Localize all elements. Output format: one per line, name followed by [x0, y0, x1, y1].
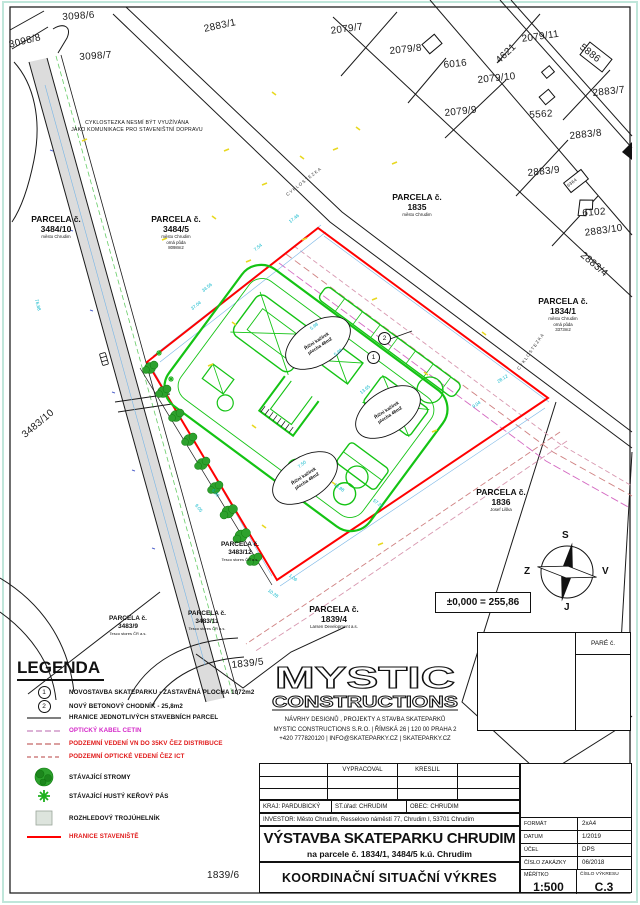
parcel-label-3484-5: PARCELA č. 3484/5 město Chrudim orná půd…	[151, 214, 201, 251]
meritko-value: 1:500	[521, 879, 576, 895]
legend-title: LEGENDA	[17, 658, 104, 681]
drawing-sheet: Říční kačírek plocha 48m2 Říční kačírek …	[0, 0, 640, 905]
obec-cell: OBEC: CHRUDIM	[407, 801, 519, 812]
legend-item: HRANICE JEDNOTLIVÝCH STAVEBNÍCH PARCEL	[26, 714, 218, 721]
project-title-cell: VÝSTAVBA SKATEPARKU CHRUDIM na parcele č…	[259, 826, 520, 862]
compass-rose	[532, 537, 602, 607]
parcel-label-1834-1: PARCELA č. 1834/1 město Chrudim orná půd…	[538, 296, 588, 333]
car-icon	[99, 352, 108, 365]
legend-item: PODZEMNÍ OPTICKÉ VEDENÍ ČEZ ICT	[26, 753, 185, 760]
parcel-label-3483-9: PARCELA č. 3483/9 Tesco stores ČR a.s.	[109, 615, 147, 636]
ict-line-icon	[26, 754, 62, 760]
kraj-cell: KRAJ: PARDUBICKÝ	[260, 801, 332, 812]
legend-callout-2: 2	[38, 700, 51, 713]
legend-item: 1 NOVOSTAVBA SKATEPARKU - ZASTAVĚNÁ PLOC…	[26, 686, 254, 699]
road-ticks	[50, 150, 155, 549]
elevation-datum: ±0,000 = 255,86	[435, 592, 531, 613]
border-fold-mark	[622, 142, 632, 160]
cyklostezka-note: CYKLOSTEZKA NESMÍ BÝT VYUŽÍVÁNA JAKO KOM…	[71, 120, 203, 134]
plot-label: 1839/6	[207, 870, 239, 881]
parcel-line-icon	[26, 715, 62, 721]
legend-item: ROZHLEDOVÝ TROJÚHELNÍK	[26, 810, 160, 826]
pare-box: PARÉ č.	[477, 632, 631, 731]
callout-skatepark: 1	[367, 351, 380, 364]
investor-cell: INVESTOR: Město Chrudim, Resselovo náměs…	[260, 814, 519, 825]
compass-west-label: Z	[524, 566, 530, 577]
parcel-label-3484-10: PARCELA č. 3484/10 město Chrudim	[31, 214, 81, 240]
urad-cell: ST.úřad: CHRUDIM	[332, 801, 407, 812]
pare-label: PARÉ č.	[576, 633, 630, 655]
bush-icon	[26, 789, 62, 803]
parcel-label-1839-4: PARCELA č. 1839/4 Larsen Development a.s…	[309, 604, 359, 630]
logo-word-top: MYSTIC	[275, 660, 455, 695]
drawing-border	[10, 7, 630, 893]
plot-label: 5562	[529, 108, 553, 121]
vypracoval-header: VYPRACOVAL	[328, 764, 398, 776]
sight-triangle-icon	[26, 810, 62, 826]
legend-item: PODZEMNÍ VEDENÍ VN DO 35KV ČEZ DISTRIBUC…	[26, 740, 223, 747]
kreslil-header: KRESLIL	[398, 764, 458, 776]
construction-site-boundary	[147, 228, 548, 580]
drawing-name-cell: KOORDINAČNÍ SITUAČNÍ VÝKRES	[259, 862, 520, 893]
kraj-row: KRAJ: PARDUBICKÝ ST.úřad: CHRUDIM OBEC: …	[259, 800, 520, 813]
stair-hatching	[261, 406, 293, 432]
signature-table: VYPRACOVAL KRESLIL	[259, 763, 520, 800]
plot-label: 3098/6	[62, 10, 95, 23]
tree-icon	[26, 765, 62, 789]
investor-row: INVESTOR: Město Chrudim, Resselovo náměs…	[259, 813, 520, 826]
project-title: VÝSTAVBA SKATEPARKU CHRUDIM	[260, 829, 519, 849]
parcel-label-1835: PARCELA č. 1835 město Chrudim	[392, 192, 442, 218]
logo-word-bottom: CONSTRUCTIONS	[272, 694, 458, 711]
vykres-value: C.3	[577, 879, 631, 895]
meritko-label: MĚŘÍTKO	[521, 870, 576, 879]
legend-item: OPTICKÝ KABEL CETIN	[26, 727, 142, 734]
logo-taglines: NÁVRHY DESIGNŮ , PROJEKTY A STAVBA SKATE…	[255, 716, 475, 745]
compass-east-label: V	[602, 566, 609, 577]
info-column: FORMÁT 2xA4 DATUM 1/2019 ÚČEL DPS ČÍSLO …	[520, 763, 632, 893]
vykres-label: ČÍSLO VÝKRESU	[577, 870, 631, 879]
bush-marks	[156, 350, 174, 382]
legend-item: STÁVAJÍCÍ STROMY	[26, 765, 131, 789]
legend-item: HRANICE STAVENIŠTĚ	[26, 833, 139, 840]
plot-label: 6102	[582, 206, 606, 219]
cetin-cable-icon	[26, 728, 62, 734]
parcel-label-1836: PARCELA č. 1836 Josef Liška	[476, 487, 526, 513]
compass-north-label: S	[562, 530, 569, 541]
project-subtitle: na parcele č. 1834/1, 3484/5 k.ú. Chrudi…	[260, 849, 519, 860]
callout-chodnik: 2	[378, 332, 391, 345]
vn-line-icon	[26, 741, 62, 747]
legend-item: 2 NOVÝ BETONOVÝ CHODNÍK - 25,8m2	[26, 700, 183, 713]
compass-south-label: J	[564, 602, 570, 613]
parcel-label-3483-12: PARCELA č. 3483/12 Tesco stores ČR a.s.	[221, 541, 259, 562]
mystic-logo: MYSTIC CONSTRUCTIONS	[272, 660, 458, 711]
plot-label: 3098/7	[79, 50, 112, 63]
legend-callout-1: 1	[38, 686, 51, 699]
gravel-area-ellipses: Říční kačírek plocha 48m2 Říční kačírek …	[263, 306, 429, 515]
legend-item: STÁVAJÍCÍ HUSTÝ KEŘOVÝ PÁS	[26, 789, 168, 803]
site-boundary-icon	[26, 834, 62, 840]
drawing-name: KOORDINAČNÍ SITUAČNÍ VÝKRES	[260, 863, 519, 893]
road	[29, 55, 238, 702]
parcel-label-3483-11: PARCELA č. 3483/11 Tesco stores ČR a.s.	[188, 610, 226, 631]
